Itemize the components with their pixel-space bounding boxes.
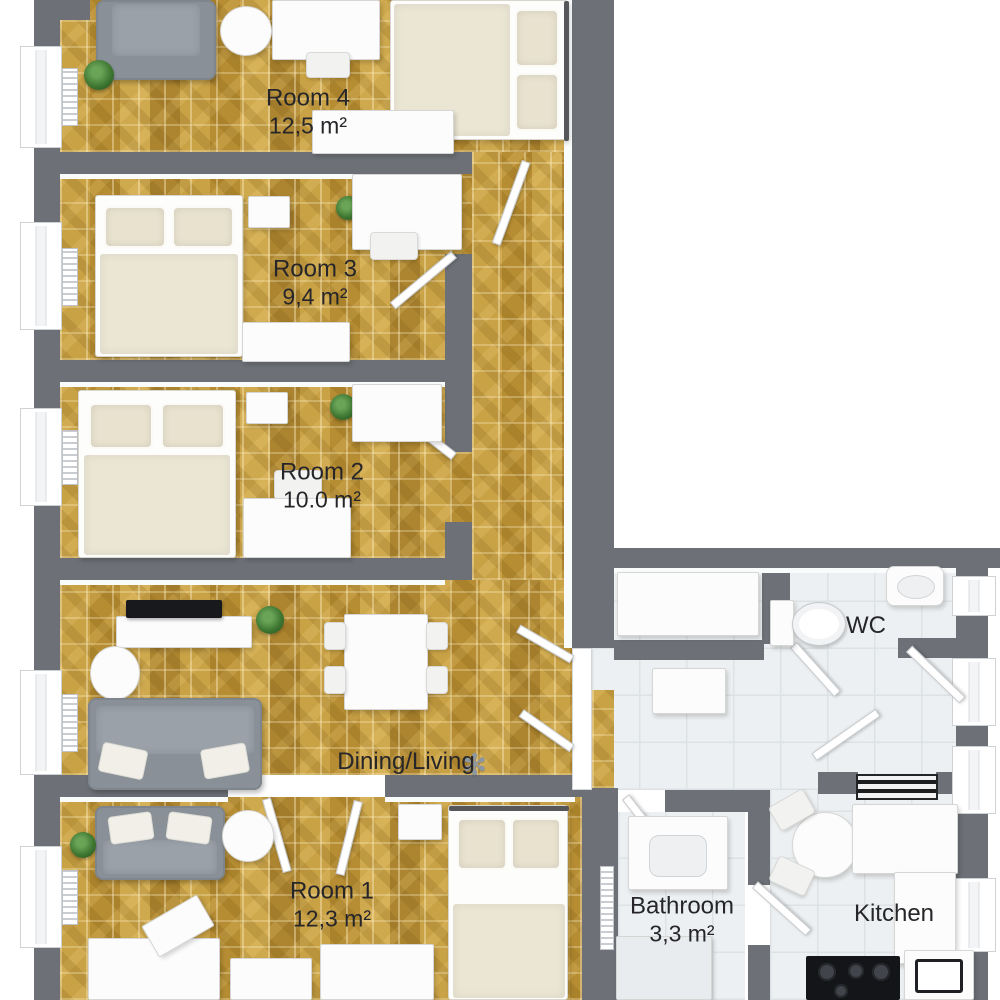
kitchen-sink: [904, 950, 974, 1000]
pillow: [511, 818, 561, 870]
kitchen-counter: [852, 804, 958, 874]
window: [952, 878, 996, 952]
radiator: [62, 694, 78, 752]
chair: [426, 666, 448, 694]
radiator: [856, 774, 938, 800]
doorframe-dining-hall: [572, 648, 592, 790]
wall-kitchen-top-a: [818, 772, 858, 794]
pillow: [104, 206, 166, 248]
room-name: Room 4: [266, 84, 350, 112]
floor-plan: ✻ Room 4: [0, 0, 1000, 1000]
plant: [84, 60, 114, 90]
radiator: [62, 870, 78, 925]
toilet-tank: [770, 600, 794, 646]
duvet: [100, 254, 238, 354]
tv: [126, 600, 222, 618]
duvet: [84, 455, 230, 555]
dining-table: [344, 614, 428, 710]
room-name: Room 1: [290, 877, 374, 905]
wall-corridor-a: [445, 254, 472, 452]
pillow: [200, 742, 251, 780]
plant: [70, 832, 96, 858]
room-name: Bathroom: [630, 892, 734, 920]
hall-wardrobe: [617, 572, 759, 636]
room-area: 3,3 m²: [630, 921, 734, 948]
label-dining: Dining/Living: [337, 748, 474, 776]
room-name: WC: [846, 612, 886, 640]
sink-basin: [915, 959, 963, 993]
wall-cap: [60, 797, 228, 802]
round-table: [222, 810, 274, 862]
sofa: [95, 806, 225, 880]
wall-corridor-b: [445, 522, 472, 580]
wall-wc-bottom-left: [614, 640, 764, 660]
label-wc: WC: [846, 612, 886, 640]
wc-sink: [886, 566, 944, 606]
pillow: [457, 818, 507, 870]
headboard: [564, 1, 569, 141]
wall-room2-dining: [34, 558, 472, 580]
desk: [230, 958, 312, 1000]
sink-basin: [897, 575, 935, 599]
window: [20, 670, 62, 775]
chair: [306, 52, 350, 78]
burner: [818, 963, 836, 981]
armchair: [96, 0, 216, 80]
pillow: [165, 811, 212, 845]
sink-basin: [649, 835, 707, 877]
wall-room3-room2: [34, 360, 472, 382]
label-room1: Room 1 12,3 m²: [290, 877, 374, 932]
chair: [370, 232, 418, 260]
round-table: [220, 6, 272, 56]
plant: [256, 606, 284, 634]
room-area: 9,4 m²: [273, 284, 357, 311]
desk: [320, 944, 434, 1000]
tv-board: [116, 616, 252, 648]
wall-cap: [385, 797, 575, 802]
room-name: Room 3: [273, 255, 357, 283]
towel-radiator: [600, 866, 614, 950]
floor-threshold: [592, 690, 614, 788]
hall-cabinet: [652, 668, 726, 714]
label-room4: Room 4 12,5 m²: [266, 84, 350, 139]
label-room3: Room 3 9,4 m²: [273, 255, 357, 310]
wardrobe: [242, 322, 350, 362]
window: [20, 846, 62, 948]
wardrobe: [352, 384, 442, 442]
wall-leftwing-right: [572, 0, 614, 648]
double-bed: [95, 195, 243, 357]
floor-corridor: [472, 152, 572, 580]
nightstand: [398, 804, 442, 840]
duvet: [453, 904, 565, 998]
label-bathroom: Bathroom 3,3 m²: [630, 892, 734, 947]
pillow: [515, 9, 559, 67]
window: [20, 222, 62, 330]
wall-top-stub: [40, 0, 90, 20]
stove: [806, 956, 900, 1000]
radiator: [62, 68, 78, 126]
burner: [872, 963, 890, 981]
wall-room4-room3: [34, 152, 472, 174]
sofa-seat: [103, 840, 217, 874]
nightstand: [248, 196, 290, 228]
nightstand: [246, 392, 288, 424]
room-area: 12,3 m²: [290, 906, 374, 933]
room-area: 10.0 m²: [280, 487, 364, 514]
pillow: [89, 403, 153, 449]
desk: [272, 0, 380, 60]
chair: [426, 622, 448, 650]
pillow: [161, 403, 225, 449]
room-name: Room 2: [280, 458, 364, 486]
double-bed: [78, 390, 236, 558]
chair: [324, 622, 346, 650]
window: [20, 46, 62, 148]
coffee-table: [90, 646, 140, 700]
headboard: [449, 806, 569, 811]
room-name: Dining/Living: [337, 748, 474, 776]
room-name: Kitchen: [854, 900, 934, 928]
bed: [448, 805, 568, 1000]
radiator: [62, 248, 78, 306]
wall-hall-top: [614, 548, 1000, 568]
chair: [324, 666, 346, 694]
radiator: [62, 430, 78, 485]
wall-cap: [60, 580, 445, 585]
pillow: [515, 73, 559, 131]
burner: [834, 984, 848, 998]
window: [952, 746, 996, 814]
label-room2: Room 2 10.0 m²: [280, 458, 364, 513]
label-kitchen: Kitchen: [854, 900, 934, 928]
room-area: 12,5 m²: [266, 113, 350, 140]
toilet: [792, 602, 846, 646]
pillow: [172, 206, 234, 248]
wall-bath-kitchen-b: [748, 945, 770, 1000]
bathroom-vanity: [628, 816, 728, 890]
sofa: [88, 698, 262, 790]
window: [952, 576, 996, 616]
armchair-seat: [112, 4, 200, 56]
wall-bath-kitchen-a: [748, 790, 770, 885]
burner: [848, 963, 864, 979]
window: [20, 408, 62, 506]
wall-wc-bottom-right: [898, 638, 956, 658]
